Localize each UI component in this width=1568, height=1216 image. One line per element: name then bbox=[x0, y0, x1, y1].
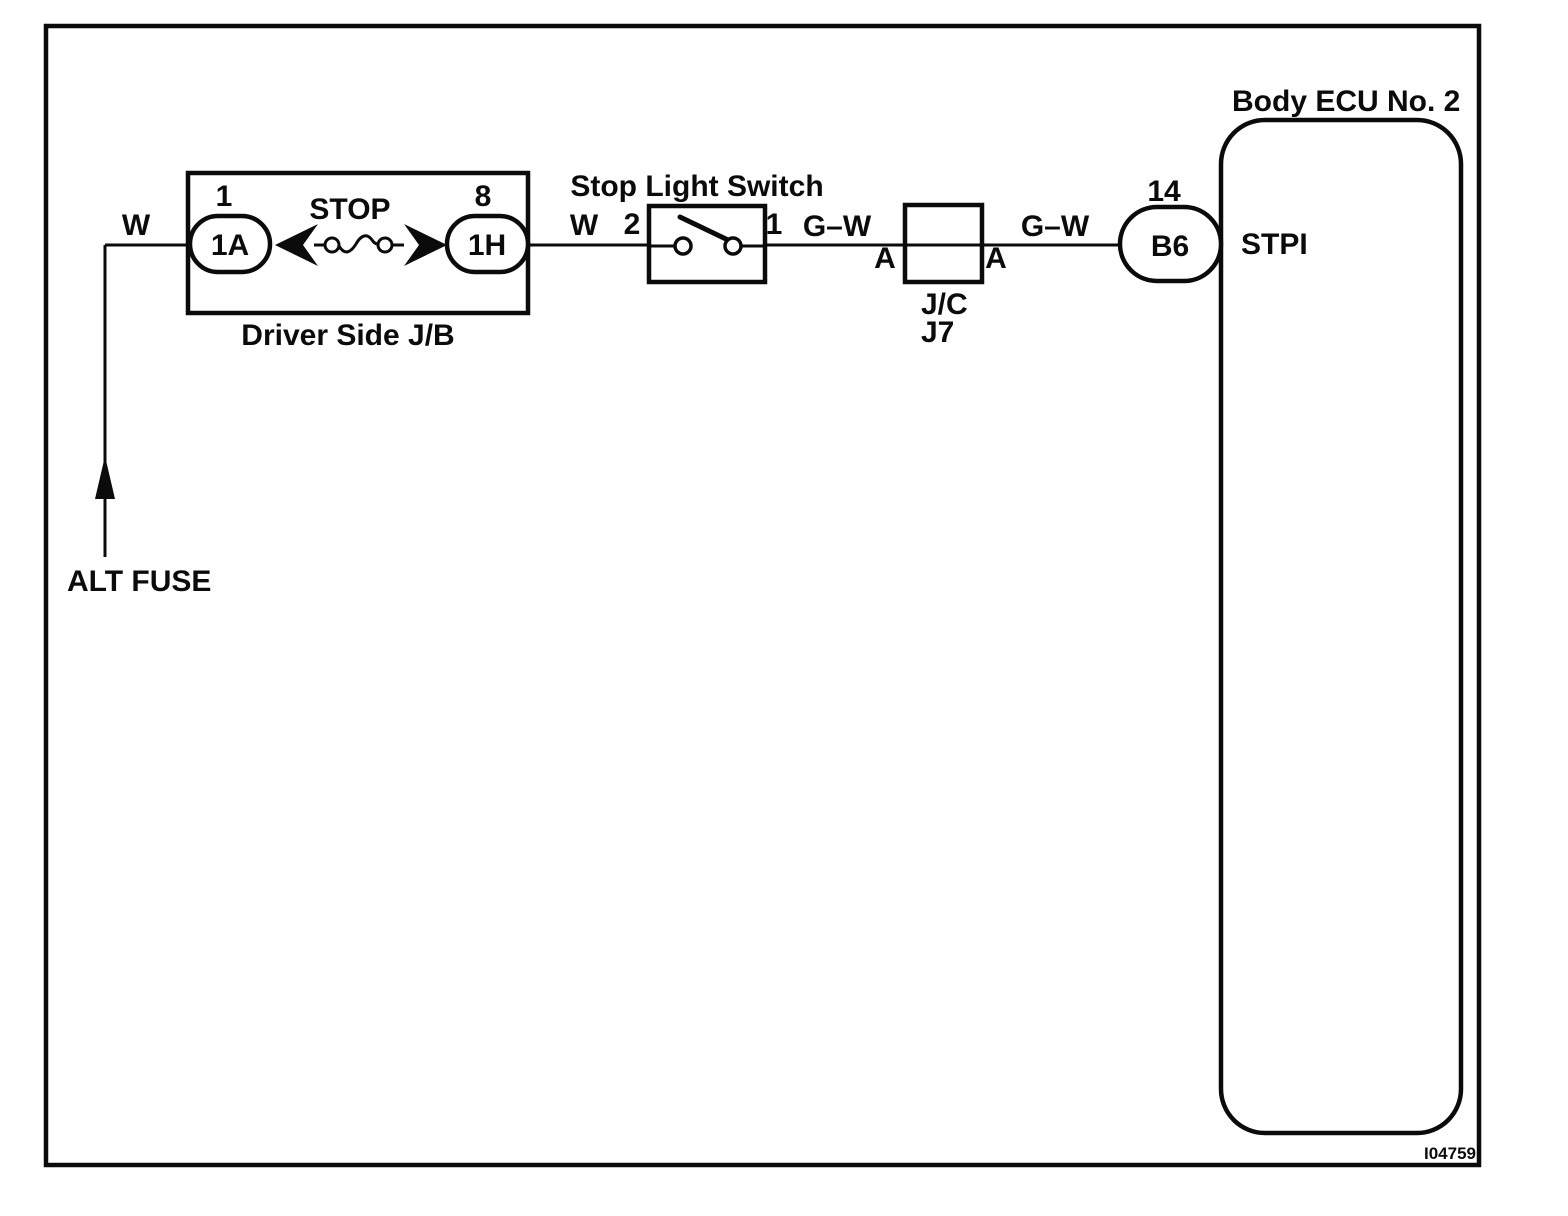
ecu-connector-b6-label: B6 bbox=[1151, 230, 1189, 263]
wire-label-gw-1: G–W bbox=[803, 210, 872, 243]
stop-light-switch-box bbox=[649, 206, 765, 282]
fuse-element-symbol bbox=[339, 236, 378, 252]
fuse-arrow-left-icon bbox=[275, 224, 318, 266]
switch-pin-1-label: 1 bbox=[766, 208, 783, 241]
jc-id-label: J7 bbox=[921, 316, 954, 349]
driver-side-jb-label: Driver Side J/B bbox=[241, 319, 454, 352]
ecu-terminal-stpi-label: STPI bbox=[1241, 228, 1308, 261]
fuse-arrow-right-icon bbox=[404, 224, 447, 266]
stop-light-switch-label: Stop Light Switch bbox=[570, 170, 823, 203]
jb-pin-out-label: 8 bbox=[475, 180, 492, 213]
wiring-diagram-canvas: ALT FUSE W 1 8 1A 1H STOP Driver Side J/… bbox=[0, 0, 1568, 1216]
fuse-terminal-left bbox=[325, 238, 339, 252]
fuse-terminal-right bbox=[378, 238, 392, 252]
wire-label-gw-2: G–W bbox=[1021, 210, 1090, 243]
switch-contact-left bbox=[675, 238, 691, 254]
body-ecu-box bbox=[1221, 120, 1461, 1133]
ecu-pin-14-label: 14 bbox=[1147, 175, 1181, 208]
figure-number: I04759 bbox=[1424, 1144, 1476, 1163]
jb-fuse-name-label: STOP bbox=[309, 193, 390, 226]
jb-cavity-1h-label: 1H bbox=[468, 229, 506, 262]
switch-pin-2-label: 2 bbox=[624, 208, 641, 241]
body-ecu-label: Body ECU No. 2 bbox=[1232, 85, 1460, 118]
jc-pin-a-left-label: A bbox=[874, 242, 896, 275]
arrow-up-icon bbox=[95, 456, 115, 499]
jb-cavity-1a-label: 1A bbox=[211, 229, 249, 262]
switch-contact-right bbox=[725, 238, 741, 254]
wire-label-w-switch: W bbox=[570, 209, 599, 242]
jc-pin-a-right-label: A bbox=[985, 242, 1007, 275]
wiring-diagram-page: ALT FUSE W 1 8 1A 1H STOP Driver Side J/… bbox=[0, 0, 1568, 1216]
wire-label-w-feed: W bbox=[122, 209, 151, 242]
alt-fuse-label: ALT FUSE bbox=[67, 565, 211, 598]
jb-pin-in-label: 1 bbox=[216, 180, 233, 213]
